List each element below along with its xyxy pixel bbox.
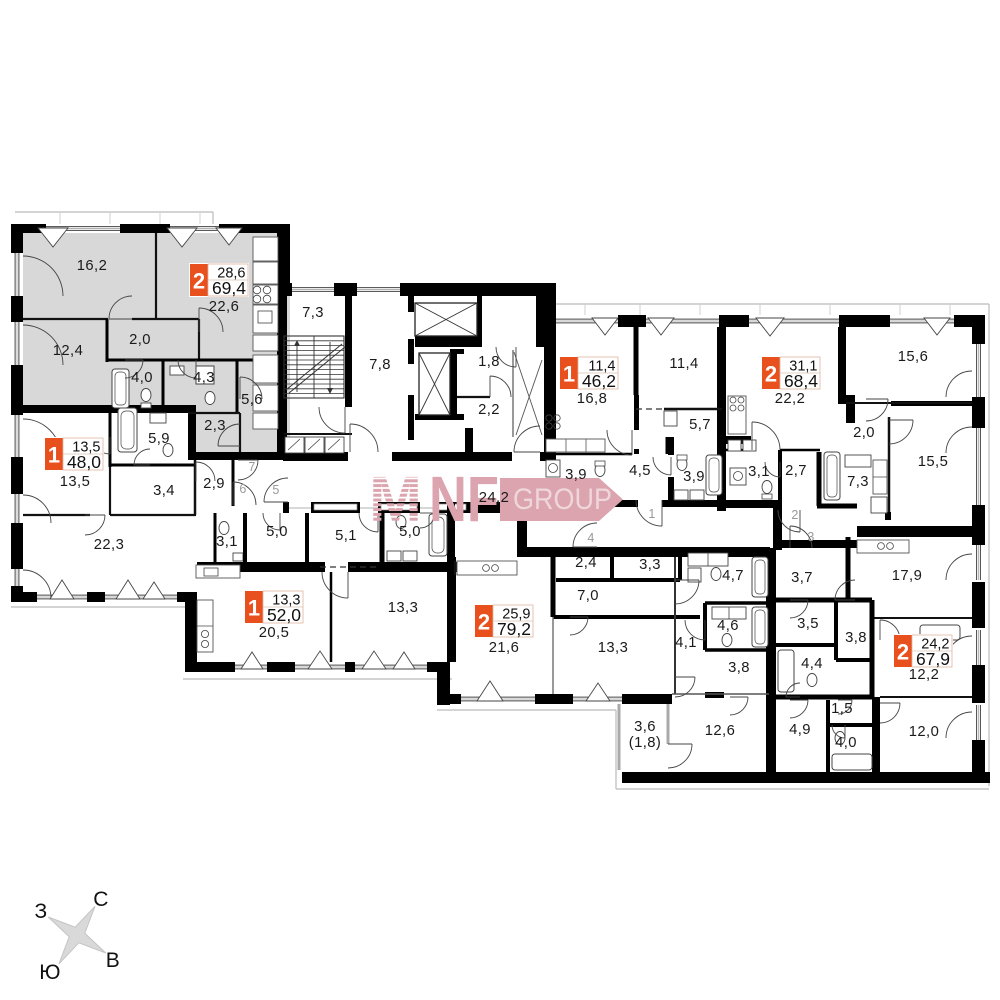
svg-text:7,0: 7,0 xyxy=(577,588,599,604)
svg-text:3,1: 3,1 xyxy=(216,534,238,550)
svg-text:2,9: 2,9 xyxy=(203,476,225,492)
svg-text:16,8: 16,8 xyxy=(577,391,607,407)
svg-text:4,6: 4,6 xyxy=(717,618,739,634)
svg-text:2,4: 2,4 xyxy=(575,555,597,571)
svg-text:1: 1 xyxy=(248,596,260,621)
svg-text:13,3: 13,3 xyxy=(388,600,418,616)
svg-text:5,9: 5,9 xyxy=(148,431,170,447)
svg-text:2: 2 xyxy=(478,610,490,635)
svg-text:4,3: 4,3 xyxy=(193,370,215,386)
svg-text:13,3: 13,3 xyxy=(598,640,628,656)
svg-text:22,6: 22,6 xyxy=(209,299,239,315)
svg-text:79,2: 79,2 xyxy=(497,619,531,639)
svg-text:2,0: 2,0 xyxy=(853,425,875,441)
svg-text:3,7: 3,7 xyxy=(791,570,813,586)
svg-text:15,6: 15,6 xyxy=(898,349,928,365)
svg-text:(1,8): (1,8) xyxy=(629,735,661,751)
svg-text:2,3: 2,3 xyxy=(204,418,226,434)
svg-text:3,8: 3,8 xyxy=(728,660,750,676)
svg-text:2: 2 xyxy=(791,508,798,522)
svg-text:5,0: 5,0 xyxy=(266,524,288,540)
svg-text:1: 1 xyxy=(648,507,655,521)
svg-text:4,0: 4,0 xyxy=(131,370,153,386)
svg-text:В: В xyxy=(106,949,120,972)
svg-text:Ю: Ю xyxy=(39,961,61,984)
svg-text:1: 1 xyxy=(563,362,575,387)
svg-text:6: 6 xyxy=(239,482,246,496)
svg-text:1,8: 1,8 xyxy=(478,354,500,370)
svg-text:3,1: 3,1 xyxy=(748,464,770,480)
svg-text:24,2: 24,2 xyxy=(479,490,509,506)
svg-text:17,9: 17,9 xyxy=(892,568,922,584)
svg-text:12,0: 12,0 xyxy=(909,724,939,740)
svg-text:3,6: 3,6 xyxy=(634,719,656,735)
svg-text:1,5: 1,5 xyxy=(831,701,853,717)
svg-text:4,9: 4,9 xyxy=(789,722,811,738)
svg-text:7,3: 7,3 xyxy=(847,474,869,490)
svg-text:GROUP: GROUP xyxy=(513,483,612,516)
svg-text:3,9: 3,9 xyxy=(683,469,705,485)
svg-text:2,2: 2,2 xyxy=(478,402,500,418)
svg-text:67,9: 67,9 xyxy=(916,649,950,669)
svg-text:5,0: 5,0 xyxy=(399,524,421,540)
svg-text:21,6: 21,6 xyxy=(489,640,519,656)
svg-text:5,1: 5,1 xyxy=(335,528,357,544)
svg-text:З: З xyxy=(34,900,47,923)
svg-text:2: 2 xyxy=(193,269,205,294)
svg-text:46,2: 46,2 xyxy=(582,371,616,391)
svg-text:20,5: 20,5 xyxy=(259,625,289,641)
svg-text:48,0: 48,0 xyxy=(67,452,101,472)
svg-text:12,6: 12,6 xyxy=(705,723,735,739)
svg-text:22,2: 22,2 xyxy=(775,391,805,407)
svg-text:7,3: 7,3 xyxy=(302,305,324,321)
svg-text:3,4: 3,4 xyxy=(153,483,175,499)
svg-text:22,3: 22,3 xyxy=(94,537,124,553)
svg-text:4,1: 4,1 xyxy=(675,635,697,651)
svg-text:5: 5 xyxy=(272,483,279,497)
svg-text:1: 1 xyxy=(48,443,60,468)
svg-text:5,6: 5,6 xyxy=(241,392,263,408)
svg-text:4,4: 4,4 xyxy=(801,656,823,672)
svg-text:С: С xyxy=(93,888,109,911)
svg-text:4,0: 4,0 xyxy=(835,735,857,751)
svg-text:11,4: 11,4 xyxy=(669,356,698,372)
svg-text:5,7: 5,7 xyxy=(689,417,711,433)
svg-text:2: 2 xyxy=(765,362,777,387)
svg-text:16,2: 16,2 xyxy=(77,258,107,274)
svg-text:3,8: 3,8 xyxy=(845,630,867,646)
svg-text:3,3: 3,3 xyxy=(639,557,661,573)
svg-text:4,7: 4,7 xyxy=(722,568,744,584)
svg-text:68,4: 68,4 xyxy=(784,371,818,391)
svg-text:52,0: 52,0 xyxy=(267,605,301,625)
svg-text:12,4: 12,4 xyxy=(53,343,83,359)
svg-text:15,5: 15,5 xyxy=(918,454,948,470)
svg-text:4,5: 4,5 xyxy=(629,463,651,479)
svg-text:3,5: 3,5 xyxy=(797,616,819,632)
svg-text:69,4: 69,4 xyxy=(212,278,246,298)
svg-text:2: 2 xyxy=(897,640,909,665)
svg-text:3,9: 3,9 xyxy=(565,467,587,483)
svg-text:3: 3 xyxy=(807,530,814,544)
svg-text:7,8: 7,8 xyxy=(369,357,391,373)
svg-text:2,0: 2,0 xyxy=(129,332,151,348)
svg-text:12,2: 12,2 xyxy=(909,667,939,683)
svg-text:4: 4 xyxy=(587,531,594,545)
svg-text:7: 7 xyxy=(248,460,255,474)
svg-text:13,5: 13,5 xyxy=(60,474,90,490)
svg-text:2,7: 2,7 xyxy=(785,463,807,479)
